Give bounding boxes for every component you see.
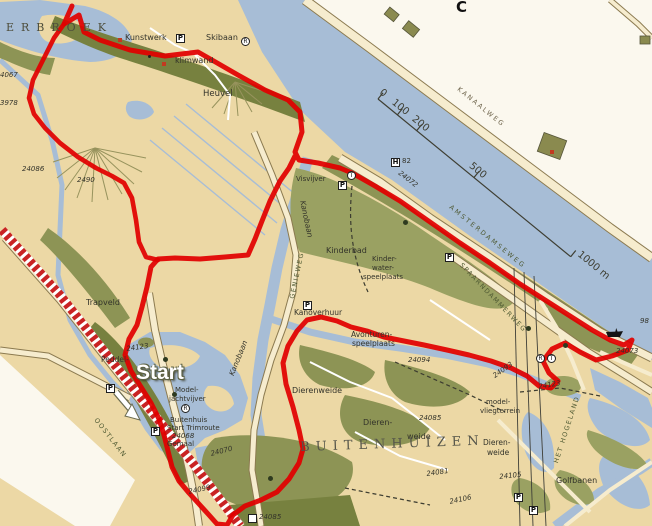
topographic-map: 01002005001000 m PPPPPPPPHRRRTT ERBROEKK… (0, 0, 652, 526)
parking-icon: P (514, 493, 523, 502)
teahouse-icon: T (347, 171, 356, 180)
poi-label: water- (372, 265, 394, 272)
poi-label-gemaal: Gemaal (167, 441, 194, 448)
poi-label: vliegterrein (480, 408, 520, 415)
poi-label-trapveld: Trapveld (86, 299, 120, 307)
poi-label-kunstwerk: Kunstwerk (125, 34, 167, 42)
scale-bar-label: 200 (409, 114, 431, 135)
parking-icon: P (445, 253, 454, 262)
poi-label: Dieren- (483, 439, 510, 447)
kunstwerk-dot-icon (148, 55, 151, 58)
poi-label-visvijver: Visvijver (296, 176, 326, 183)
poi-label: weide (487, 449, 509, 457)
route-number: 2490 (77, 177, 95, 184)
poi-label: speelplaats (352, 340, 395, 348)
restaurant-icon: R (536, 354, 545, 363)
building-icon (118, 38, 122, 42)
route-number: 4067 (0, 72, 18, 79)
restaurant-icon: R (241, 37, 250, 46)
start-label: Start (136, 362, 184, 383)
scale-bar-label: 100 (389, 97, 411, 118)
poi-label: Model- (175, 387, 199, 394)
scale-bar-label: 1000 m (575, 249, 612, 282)
poi-label-skibaan: Skibaan (206, 34, 238, 42)
route-number: 24085 (259, 514, 281, 521)
poi-label: Kinder- (372, 256, 397, 263)
poi-label-heuvel: Heuvel (203, 90, 233, 99)
route-number: 24094 (408, 357, 430, 364)
start-arrow-icon (116, 392, 140, 420)
poi-label: Peddel- (101, 356, 129, 364)
tree-icon (563, 343, 568, 348)
hotel-marker-icon: H (391, 158, 400, 167)
building-icon (162, 62, 166, 66)
scale-bar-line (571, 251, 576, 257)
route-number: 24086 (22, 166, 44, 173)
area-label-erbroek: ERBROEK (6, 22, 113, 33)
restaurant-icon: R (181, 404, 190, 413)
poi-label-dierenweide: Dierenweide (292, 387, 342, 395)
parking-icon: P (529, 506, 538, 515)
poi-label: Avonturen- (351, 331, 392, 339)
poi-label-kinderbad: Kinderbad (326, 247, 367, 255)
route-path-left_branch (29, 24, 158, 260)
teahouse-icon: T (547, 354, 556, 363)
route-number: 98 (640, 318, 649, 325)
parking-icon: P (338, 181, 347, 190)
scale-bar-label: 500 (467, 161, 489, 182)
poi-label: Dieren- (363, 419, 392, 427)
tree-icon (268, 476, 273, 481)
poi-label-kanoverhuur: Kanoverhuur (294, 309, 342, 317)
poi-label-golfbanen: Golfbanen (556, 477, 597, 485)
route-number: 24068 (172, 433, 194, 440)
poi-label-klimwand: klimwand (175, 57, 213, 65)
poi-label: speelplaats (363, 274, 403, 281)
poi-label-start-trimroute: Start Trimroute (167, 425, 220, 432)
poi-label: jachtvijver (169, 396, 206, 403)
route-number: 24073 (616, 348, 638, 355)
parking-icon: P (176, 34, 185, 43)
building-icon (550, 150, 554, 154)
poi-marker-icon (248, 514, 257, 523)
parking-icon: P (151, 427, 160, 436)
poi-label: model- (486, 399, 510, 406)
parking-icon: P (106, 384, 115, 393)
grid-letter: C (456, 0, 467, 15)
route-number: 3978 (0, 100, 18, 107)
route-number: 24085 (419, 415, 441, 422)
poi-label: Buitenhuis (170, 417, 207, 424)
marker-number: 82 (402, 158, 411, 165)
tree-icon (403, 220, 408, 225)
